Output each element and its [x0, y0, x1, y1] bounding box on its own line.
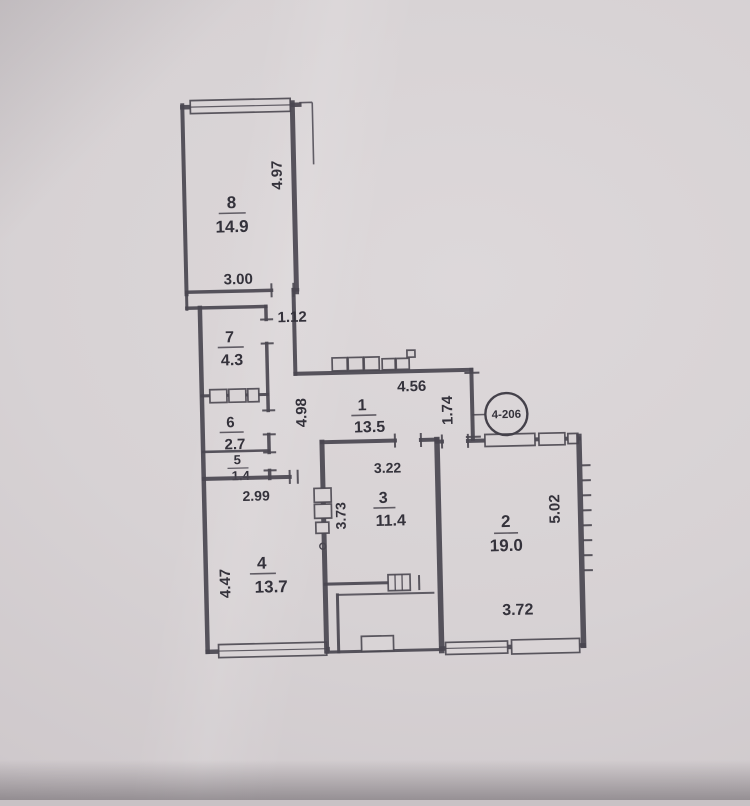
- room-2-number: 2: [501, 512, 511, 531]
- vent-block: [210, 389, 227, 402]
- room-4: 2.99 4 13.7 4.47: [204, 469, 328, 658]
- alcove: [325, 593, 441, 653]
- room-6-number: 6: [226, 414, 235, 431]
- room-6-area: 2.7: [224, 436, 245, 453]
- dim-room4-height: 4.47: [217, 569, 235, 599]
- dim-room1-width: 4.56: [397, 378, 427, 396]
- dim-room2-height: 5.02: [546, 494, 564, 524]
- room-3-area: 11.4: [375, 512, 406, 530]
- shaft-block: [361, 636, 393, 652]
- room-8-number: 8: [227, 193, 237, 212]
- vent-block: [229, 389, 246, 402]
- room-2: 2 19.0 5.02 3.72: [437, 431, 595, 655]
- room-8-area: 14.9: [215, 217, 249, 237]
- dim-room8-width: 3.00: [223, 271, 253, 289]
- room-1-hall: 1 13.5 4.56 1.74: [295, 349, 481, 443]
- dim-hall-neck: 1.12: [277, 309, 307, 327]
- vent-block: [364, 357, 379, 370]
- room-1-number: 1: [357, 397, 366, 414]
- dim-room4-width: 2.99: [242, 487, 270, 504]
- shaft-ladder: [388, 574, 410, 590]
- stamp-label: 4-206: [492, 409, 522, 422]
- room-3: 3.22 3 11.4 3.73: [313, 433, 442, 654]
- dim-room2-width: 3.72: [502, 601, 534, 619]
- vent-block: [348, 357, 363, 370]
- vent-block: [396, 358, 409, 369]
- room-7-number: 7: [225, 329, 234, 346]
- room-6: 6 2.7: [202, 410, 276, 454]
- shaft-block: [316, 522, 329, 533]
- vent-block: [248, 389, 259, 402]
- vent-block: [332, 358, 347, 371]
- floor-plan: 8 14.9 4.97 3.00 1.12 4.98: [0, 0, 750, 806]
- room-1-area: 13.5: [354, 419, 386, 437]
- room-4-area: 13.7: [254, 577, 288, 597]
- dim-room3-width: 3.22: [374, 459, 402, 476]
- dim-corridor-length: 4.98: [293, 398, 311, 428]
- room-7-area: 4.3: [221, 352, 244, 370]
- room-4-number: 4: [257, 553, 267, 572]
- shaft-block: [314, 488, 331, 502]
- shaft-block: [314, 504, 331, 518]
- room-3-number: 3: [379, 490, 388, 507]
- floor-plan-svg: 8 14.9 4.97 3.00 1.12 4.98: [0, 0, 750, 806]
- dim-room1-depth: 1.74: [439, 395, 457, 425]
- corridor: 1.12 4.98: [187, 290, 311, 430]
- room-2-area: 19.0: [490, 536, 524, 556]
- room-5-area: 1.4: [231, 468, 250, 483]
- room-5-number: 5: [234, 452, 242, 467]
- dim-room8-height: 4.97: [269, 160, 287, 190]
- dim-room3-height: 3.73: [332, 502, 349, 530]
- paper-photo-background: 8 14.9 4.97 3.00 1.12 4.98: [0, 0, 750, 800]
- room-8: 8 14.9 4.97 3.00: [182, 98, 316, 299]
- balcony-door-panel: [511, 638, 579, 654]
- vent-block: [382, 359, 395, 370]
- vent-block: [407, 350, 415, 357]
- apartment-stamp: 4-206: [472, 393, 528, 436]
- window: [539, 433, 565, 446]
